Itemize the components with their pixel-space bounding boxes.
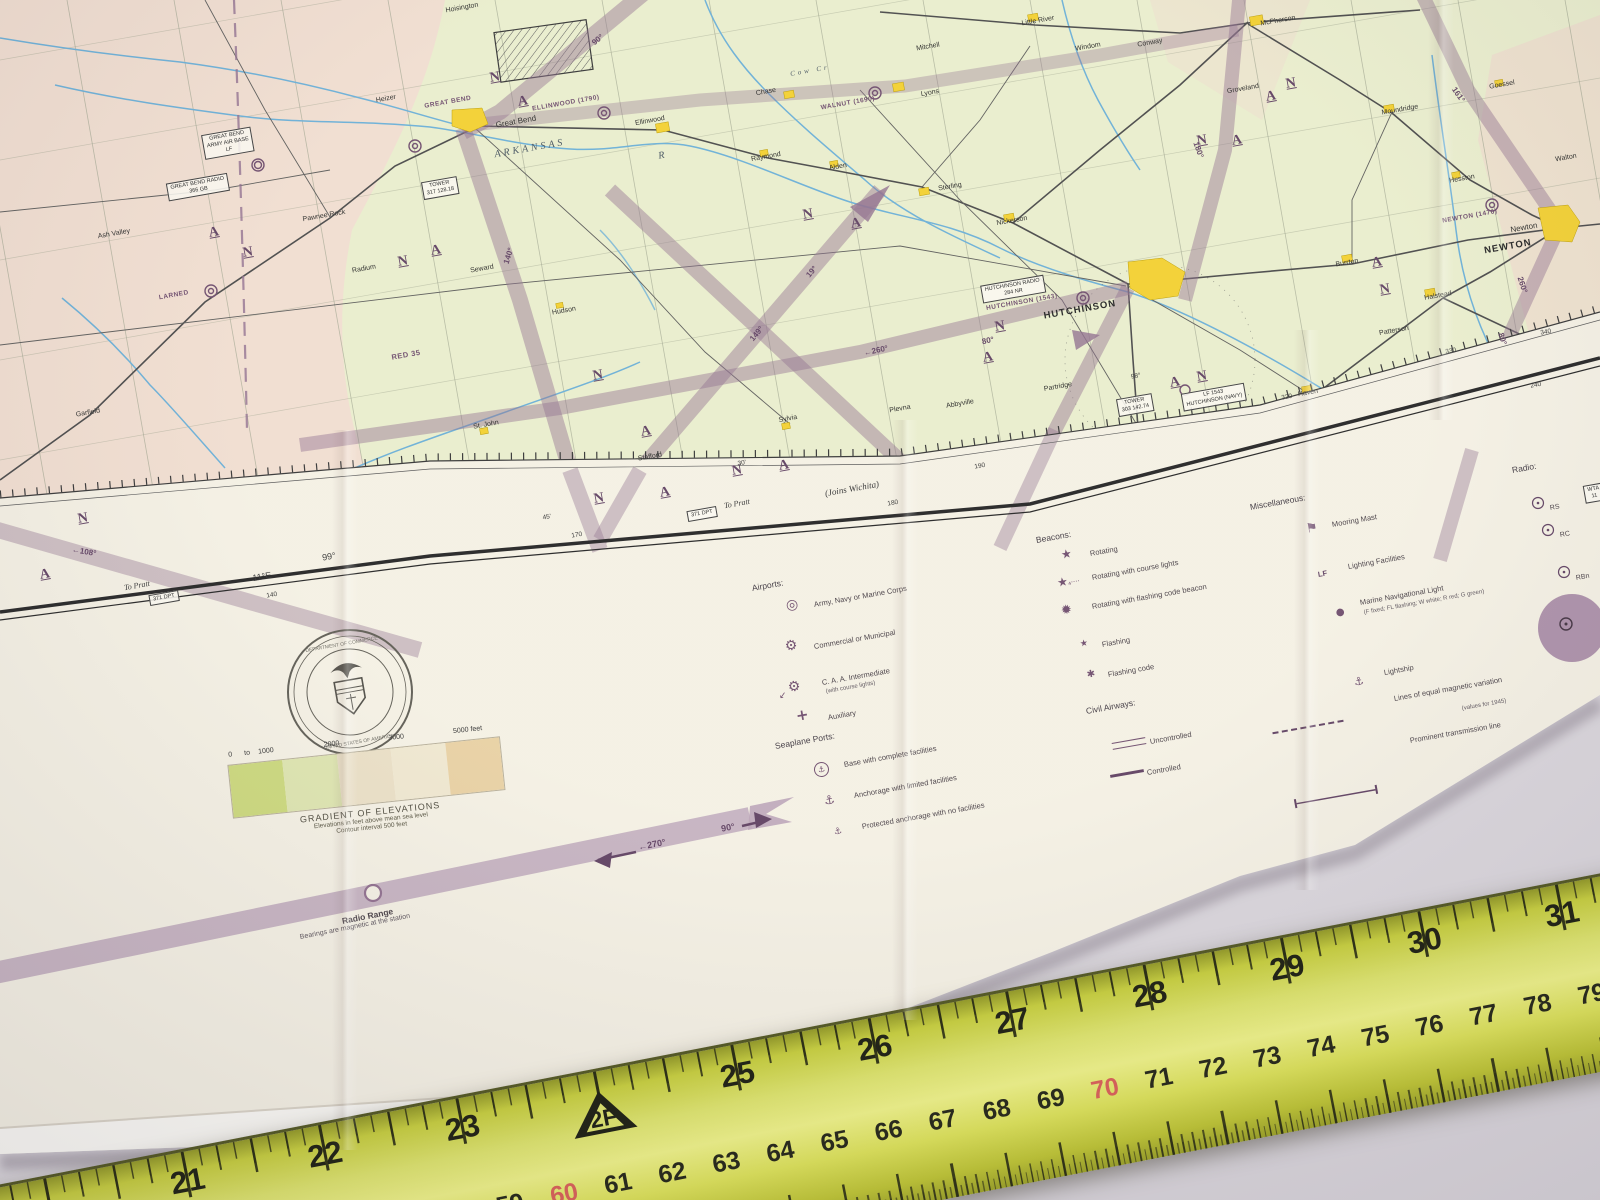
town-label: Ash Valley (97, 228, 130, 241)
town-label: Plevna (889, 404, 911, 415)
cm-number: 77 (1467, 999, 1500, 1033)
border-number: 190 (974, 463, 986, 471)
town-label: Sylvia (778, 414, 798, 424)
gradient-tick: to (244, 750, 251, 758)
radio-range-quadrant-letter: A (778, 458, 790, 474)
airway-bearing-label: ←108° (71, 546, 97, 558)
marine-light-icon: ● (1335, 607, 1345, 618)
radio-range-quadrant-letter: N (592, 368, 604, 384)
lightship-icon: ⚓ (1353, 675, 1365, 688)
radio-range-quadrant-letter: A (1265, 89, 1277, 105)
border-number: 140 (266, 592, 278, 600)
town-label: Great Bend (495, 115, 537, 130)
cm-number: 66 (872, 1114, 905, 1148)
river-label: ARKANSAS (494, 138, 566, 160)
town-label: Abbyville (946, 398, 975, 410)
town-label: Mitchell (916, 41, 941, 52)
gradient-cell (445, 737, 505, 794)
inch-number: 27 (992, 1000, 1033, 1042)
rotating-flashing-code-icon: ✹ (1060, 603, 1073, 618)
town-label: Moundridge (1381, 103, 1419, 116)
inch-number: 21 (167, 1160, 208, 1200)
margin-note: (Joins Wichita) (824, 480, 879, 498)
airport-label: WALNUT (1690) (820, 96, 875, 112)
town-label: Seward (470, 263, 495, 274)
airway-bearing-label: 149° (749, 325, 766, 343)
town-label: Heizer (375, 94, 396, 104)
radio-range-quadrant-letter: A (850, 216, 862, 232)
town-label: Groveland (1226, 83, 1259, 96)
town-label: Raymond (751, 151, 782, 163)
lf-abbr: LF (1317, 568, 1328, 578)
station-info-box: 371 DPT (686, 506, 717, 522)
airport-label: NEWTON (1470) (1442, 209, 1498, 225)
airway-bearing-label: 19° (805, 265, 819, 279)
cm-number: 69 (1035, 1083, 1068, 1117)
gradient-tick: 2000 (323, 740, 339, 749)
cm-number: 64 (764, 1135, 797, 1169)
town-label: Garfield (75, 407, 100, 418)
town-label: Halstead (1424, 290, 1452, 302)
airway-bearing-label: 90° (720, 822, 735, 833)
cm-number: 79 (1575, 978, 1600, 1012)
town-label: Little River (1021, 15, 1055, 28)
cm-number: 63 (710, 1146, 743, 1180)
town-label: Windom (1075, 41, 1102, 52)
radio-range-quadrant-letter: A (1231, 133, 1243, 149)
cm-number: 65 (818, 1125, 851, 1159)
cm-number: 59 (494, 1188, 527, 1200)
flashing-code-icon: ✱ (1086, 669, 1096, 680)
radio-range-quadrant-letter: N (593, 491, 605, 507)
town-label: Sterling (938, 181, 963, 192)
border-number: 330 (1445, 348, 1457, 356)
cm-number: 71 (1143, 1062, 1176, 1096)
army-airport-icon: ◎ (785, 597, 799, 613)
station-info-box: TOWER303 142.74 (1116, 393, 1154, 417)
town-label: Hesston (1449, 173, 1476, 184)
airway-bearing-label: 140° (503, 247, 516, 265)
margin-note: To Pratt (123, 580, 150, 592)
gradient-cell (283, 754, 343, 811)
airway-bearing-label: 90° (591, 33, 605, 47)
town-label: Nickerson (996, 215, 1028, 227)
airport-label: GREAT BEND (424, 96, 472, 111)
station-info-box: TOWER317 128.18 (421, 176, 459, 200)
inch-number: 31 (1542, 893, 1583, 935)
gradient-tick: 0 (228, 751, 233, 758)
inch-number: 28 (1129, 974, 1170, 1016)
cm-number: 78 (1521, 988, 1554, 1022)
town-label: Radium (352, 263, 377, 274)
town-label: Lyons (920, 88, 939, 98)
gradient-cell (337, 749, 397, 806)
cm-number: 73 (1251, 1041, 1284, 1075)
town-label: Hoisington (445, 2, 479, 15)
mooring-mast-icon: ⚑ (1305, 521, 1319, 536)
cm-number: 76 (1413, 1009, 1446, 1043)
airport-label: LARNED (159, 290, 190, 302)
inch-number: 23 (442, 1107, 483, 1149)
airway-bearing-label: 80° (981, 336, 995, 346)
station-info-box: 371 DPT (148, 590, 179, 606)
border-number: 180 (887, 500, 899, 508)
radio-range-quadrant-letter: A (1169, 375, 1181, 391)
auxiliary-airport-icon: + (795, 707, 810, 724)
inch-number: 22 (305, 1134, 346, 1176)
radio-range-quadrant-letter: A (430, 243, 442, 259)
town-label: Alden (829, 162, 848, 172)
airway-bearing-label: 80° (1496, 332, 1507, 346)
airport-label: ELLINWOOD (1790) (532, 95, 600, 113)
cm-number: 75 (1359, 1020, 1392, 1054)
town-label: St. John (473, 419, 500, 430)
gradient-tick: 5000 feet (453, 725, 483, 735)
town-label: Goessel (1489, 79, 1516, 90)
station-info-box: GREAT BENDARMY AIR BASELF (201, 126, 255, 159)
radio-range-quadrant-letter: N (1379, 282, 1391, 298)
radio-range-quadrant-letter: N (802, 207, 814, 223)
photo-of-sectional-chart: DEPARTMENT OF COMMERCE UNITED STATES OF … (0, 0, 1600, 1200)
anchorage-icon: ⚓ (823, 793, 836, 807)
town-label: Ellinwood (635, 115, 666, 127)
caa-intermediate-icon: ⚙ (787, 679, 802, 695)
town-label: Patterson (1379, 325, 1410, 337)
cm-number: 62 (656, 1156, 689, 1190)
foot-marker-label: 2F (588, 1103, 620, 1135)
border-number: 320 (1281, 394, 1293, 402)
radio-range-quadrant-letter: N (397, 254, 409, 270)
municipal-airport-icon: ⚙ (784, 638, 799, 654)
town-label: Walton (1555, 153, 1577, 164)
cm-number: 70 (1089, 1072, 1122, 1106)
radio-range-quadrant-letter: N (242, 245, 254, 261)
radio-range-quadrant-letter: N (994, 319, 1006, 335)
radio-range-quadrant-letter: A (640, 424, 652, 440)
inch-number: 26 (855, 1027, 896, 1069)
radio-range-quadrant-letter: N (1196, 133, 1208, 149)
airport-label: RED 35 (391, 349, 421, 361)
radio-range-quadrant-letter: A (39, 567, 51, 583)
station-info-box: WTA11 (1583, 483, 1600, 504)
border-number: 170 (571, 532, 583, 540)
cm-number: 74 (1305, 1030, 1338, 1064)
border-number: 340 (1540, 329, 1552, 337)
river-label: R (658, 150, 669, 161)
rotating-beacon-icon: ★ (1060, 547, 1073, 561)
border-number: 240 (1530, 382, 1542, 390)
cm-number: 68 (980, 1093, 1013, 1127)
city-label: NEWTON (1484, 238, 1533, 256)
town-label: Chase (755, 87, 776, 97)
airway-bearing-label: 260° (1516, 276, 1529, 294)
gradient-cell (391, 743, 451, 800)
border-number: 99° (322, 551, 337, 562)
radio-range-quadrant-letter: N (77, 511, 89, 527)
gradient-cell (228, 760, 288, 817)
radio-range-quadrant-letter: N (1196, 369, 1208, 385)
cm-number: 61 (602, 1167, 635, 1200)
border-number: 98° (1131, 373, 1142, 381)
town-label: Stafford (637, 451, 662, 462)
radio-range-quadrant-letter: A (1371, 255, 1383, 271)
border-number: 45' (542, 514, 551, 522)
radio-range-quadrant-letter: N (1285, 76, 1297, 92)
town-label: Conway (1137, 37, 1163, 48)
town-label: Newton (1510, 222, 1538, 235)
river-label: Cow Cr (790, 64, 831, 78)
town-label: Burrton (1335, 258, 1359, 269)
margin-note: To Pratt (723, 498, 750, 510)
cm-number: 72 (1197, 1051, 1230, 1085)
town-label: McPherson (1260, 14, 1296, 27)
station-info-box: LF 1543HUTCHINSON (NAVY) (1181, 383, 1248, 412)
town-label: Pawnee Rock (302, 209, 346, 223)
cm-number: 60 (548, 1177, 581, 1200)
protected-anchorage-icon: ⚓ (833, 827, 843, 837)
inch-number: 25 (717, 1054, 758, 1096)
caa-arrow-icon: ↙ (778, 691, 787, 701)
radio-range-quadrant-letter: A (517, 94, 529, 110)
town-label: Hudson (552, 305, 577, 316)
cm-number: 67 (926, 1104, 959, 1138)
gradient-tick: 3000 (388, 733, 404, 742)
radio-range-quadrant-letter: A (659, 485, 671, 501)
gradient-tick: 1000 (258, 747, 274, 756)
border-number: 30' (737, 460, 746, 468)
station-info-box: GREAT BEND RADIO366 GB (166, 173, 230, 201)
airway-bearing-label: ←270° (638, 838, 667, 852)
flashing-beacon-icon: ★ (1079, 639, 1089, 649)
town-label: Partridge (1043, 381, 1072, 393)
town-label: Haven (1297, 388, 1318, 398)
airway-bearing-label: 161° (1450, 86, 1466, 104)
radio-range-quadrant-letter: A (982, 350, 994, 366)
airway-bearing-label: ←260° (863, 345, 889, 358)
inch-number: 29 (1267, 947, 1308, 989)
city-label: HUTCHINSON (1043, 299, 1117, 321)
radio-range-quadrant-letter: A (208, 225, 220, 241)
radio-range-quadrant-letter: N (489, 70, 501, 86)
inch-number: 30 (1404, 920, 1445, 962)
border-number: 11°E (252, 571, 272, 583)
